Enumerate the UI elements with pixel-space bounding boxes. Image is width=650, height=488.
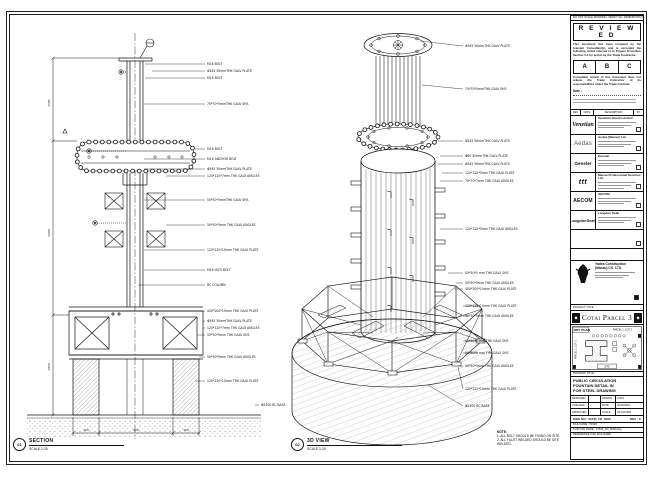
address-lines bbox=[598, 222, 624, 223]
address-lines bbox=[598, 144, 631, 145]
address-lines bbox=[598, 188, 624, 189]
info-row: DESIGNED - DRAWN LOKO bbox=[571, 396, 643, 403]
pipe-bundle bbox=[376, 56, 420, 129]
view-scale: SCALE 1:25 bbox=[29, 447, 124, 451]
checkbox bbox=[636, 241, 641, 246]
base-assembly bbox=[69, 307, 203, 359]
callout-label: 50*50*5 mm THK GALV SHS bbox=[465, 339, 508, 343]
callout-label: 50*50*5mm THK GALV ANGLES bbox=[207, 223, 256, 227]
callout-label: 50*50*5mm THK GALV ANGLES bbox=[465, 281, 514, 285]
consultant-box: Aedas Aedas (Macau) Ltd. bbox=[570, 134, 644, 154]
concrete-drum bbox=[292, 319, 492, 445]
callout-label: 120*120*10mm THK GALV PLATE bbox=[207, 248, 259, 252]
cell-drawn-label: DRAWN bbox=[601, 396, 616, 402]
stamp-mark bbox=[634, 295, 639, 300]
callout-texts: Φ345 50mmTHK GALV PLATE 70*70*5mmTHK GAL… bbox=[465, 44, 518, 408]
consultant-box: LangdonSeah Langdon Seah bbox=[570, 210, 644, 230]
project-title: Cotai Parcel 3 bbox=[582, 313, 632, 322]
yadea-logo bbox=[573, 263, 593, 302]
foundation bbox=[27, 359, 261, 438]
callout-label: Φ345 50mmTHK GALV PLATE bbox=[465, 44, 510, 48]
callout-label: 120*120*7mm THK GALV ANGLES bbox=[207, 174, 260, 178]
address-lines bbox=[598, 217, 636, 218]
stamp-status-options: A B C bbox=[573, 60, 641, 74]
title-block: DO NOT SCALE DRAWING. VERIFY ALL DIMENSI… bbox=[570, 15, 644, 460]
callout-label: M16 HILTI BOLT bbox=[207, 268, 231, 272]
callout-label: 120*120*7mm THK GALV ANGLES bbox=[207, 326, 260, 330]
note-line: 2. ALL FILLET WELDED SHOULD BE SITE WELD… bbox=[497, 438, 569, 446]
consultant-name: Langdon Seah bbox=[598, 212, 641, 215]
consultant-name: Gensler bbox=[598, 155, 641, 158]
consultant-box: Gensler Gensler bbox=[570, 153, 644, 173]
callout-label: 120*120*10mm THK GALV PLATE bbox=[465, 387, 517, 391]
address-lines bbox=[598, 163, 631, 164]
mps-logo: ttt bbox=[571, 173, 596, 191]
cell-checked-value: - bbox=[589, 403, 601, 409]
general-notes: NOTE: 1. ALL BOLT SHOULD BE FIXING ON SI… bbox=[497, 430, 569, 446]
parcel-right-label: PARCEL 1, LOT 2 bbox=[613, 329, 633, 332]
callout-label: 70*70*5mmTHK GALV SHS bbox=[207, 102, 248, 106]
callout-label: Φ345 50mmTHK GALV PLATE bbox=[465, 139, 510, 143]
dim-label: 300 bbox=[83, 428, 89, 432]
stamp-paragraph-2: Consultant review of this document does … bbox=[573, 76, 641, 87]
checkbox bbox=[636, 146, 641, 151]
callout-leaders bbox=[138, 64, 259, 405]
consultant-name: AECOM bbox=[598, 193, 641, 196]
cell-drawn-value: LOKO bbox=[616, 396, 643, 402]
checkbox bbox=[636, 184, 641, 189]
dim-label: 1585 bbox=[47, 99, 51, 107]
callout-texts: M16 BOLT Φ345 50mmTHK GALV PLATE M16 BOL… bbox=[207, 62, 286, 407]
address-lines bbox=[595, 277, 623, 278]
checkbox bbox=[636, 203, 641, 208]
fluted-cylinder bbox=[361, 149, 435, 343]
address-lines bbox=[595, 275, 629, 276]
callout-label: 50*50*5 mm THK GALV SHS bbox=[465, 351, 508, 355]
aedas-logo: Aedas bbox=[571, 135, 596, 153]
drawing-title-line3: FOR STEEL DRAWING bbox=[573, 388, 641, 393]
gensler-logo: Gensler bbox=[571, 154, 596, 172]
iso-view-drawing: Φ345 50mmTHK GALV PLATE 70*70*5mmTHK GAL… bbox=[288, 15, 569, 455]
cylinder-brackets bbox=[351, 181, 445, 312]
callout-label: 120*120*5mm THK GALV ANGLES bbox=[465, 227, 518, 231]
site-label: SITE bbox=[604, 365, 610, 368]
dwg-number: DWG NO : 51545_FD_5000 bbox=[573, 417, 611, 421]
status-option-c: C bbox=[619, 61, 640, 73]
callout-label: M16 BOLT bbox=[207, 147, 222, 151]
cell-checked-label: CHECKED bbox=[571, 403, 589, 409]
callout-label: 120*120*10mm THK GALV PLATE bbox=[465, 304, 517, 308]
callout-label: 120*120*5mm THK GALV PLATE bbox=[465, 171, 515, 175]
address-lines bbox=[595, 272, 635, 273]
empty-consultant-box bbox=[570, 229, 644, 249]
callout-label: M16 BOLT bbox=[207, 62, 222, 66]
parcel-left-label: PARCEL 1, LOT 1 bbox=[574, 340, 577, 360]
address-lines bbox=[598, 220, 631, 221]
cell-designed-value: - bbox=[589, 396, 601, 402]
drawing-title: PUBLIC CIRCULATION FOUNTAIN DETAIL IN FO… bbox=[570, 376, 644, 396]
title-block-filler bbox=[570, 437, 644, 460]
address-lines bbox=[598, 182, 636, 183]
cell-date-label: DATE bbox=[601, 403, 616, 409]
address-lines bbox=[598, 125, 631, 126]
callout-label: 50*50*5mm THK GALV ANGLES bbox=[465, 364, 514, 368]
address-lines bbox=[598, 141, 636, 142]
key-plan-label: KEY PLAN bbox=[574, 328, 591, 332]
grid-bubble bbox=[140, 39, 154, 58]
callout-label: Φ80 50mmTHK GALV PLATE bbox=[465, 154, 508, 158]
view-title: SECTION bbox=[29, 438, 124, 444]
callout-label: 400*200*10mm THK GALV PLATE bbox=[207, 309, 259, 313]
address-lines bbox=[598, 185, 631, 186]
scalloped-bowl bbox=[77, 142, 194, 171]
review-stamp: R E V I E W E D This document has been r… bbox=[570, 20, 644, 110]
key-plan: KEY PLAN PARCEL 1, LOT 2 PARCEL 1, LOT 1 bbox=[570, 324, 644, 372]
dim-label: 300 bbox=[183, 428, 189, 432]
consultant-name: Aedas (Macau) Ltd. bbox=[598, 136, 641, 139]
drawing-sheet: 1585 3200 1650 300 600 300 bbox=[0, 0, 650, 488]
callout-label: 400*200*10mm THK GALV PLATE bbox=[465, 287, 517, 291]
callout-label: Φ2300 RC BASE bbox=[465, 404, 490, 408]
detail-tag-circle: 01 bbox=[13, 438, 26, 451]
address-lines bbox=[598, 127, 624, 128]
callout-label: Φ345 50mmTHK GALV PLATE bbox=[207, 167, 252, 171]
address-lines bbox=[598, 201, 631, 202]
ornament-right: ◆ bbox=[634, 313, 642, 323]
address-lines bbox=[598, 146, 624, 147]
ornament-left: ◆ bbox=[572, 313, 580, 323]
dim-label: 1650 bbox=[47, 363, 51, 371]
consultant-name: Macau Professional Services Ltd. bbox=[598, 174, 641, 181]
aecom-logo: AECOM bbox=[571, 192, 596, 210]
checkbox bbox=[636, 222, 641, 227]
scalloped-collar bbox=[358, 124, 438, 150]
consultant-box: Venetian Venetian Orient Limited bbox=[570, 115, 644, 135]
consultant-box: AECOM AECOM bbox=[570, 191, 644, 211]
callout-label: Φ345 50mmTHK GALV PLATE bbox=[207, 319, 252, 323]
detail-tag-circle: 02 bbox=[291, 438, 304, 451]
dim-label: 3200 bbox=[47, 229, 51, 237]
checkbox bbox=[636, 127, 641, 132]
status-option-b: B bbox=[596, 61, 618, 73]
drawing-info-table: DESIGNED - DRAWN LOKO CHECKED - DATE 04/… bbox=[570, 395, 644, 416]
callout-label: 50*50*5mm THK GALV SHS bbox=[207, 333, 249, 337]
top-plate-disc bbox=[364, 34, 432, 57]
consultant-name: Venetian Orient Limited bbox=[598, 117, 641, 120]
view-title: 3D VIEW bbox=[307, 438, 402, 444]
callout-label: Φ2300 RC BASE bbox=[261, 403, 286, 407]
callout-label: 50*50*5 mm THK GALV SHS bbox=[465, 271, 508, 275]
callout-label: Φ345 50mmTHK GALV PLATE bbox=[207, 69, 252, 73]
consultant-box: ttt Macau Professional Services Ltd. bbox=[570, 172, 644, 192]
revision-value: REV : C bbox=[630, 417, 641, 421]
reviewed-stamp-title: R E V I E W E D bbox=[573, 23, 641, 41]
contractor-name-2: (Macau) CO. LTD. bbox=[595, 267, 641, 271]
view-scale: SCALE 1:25 bbox=[307, 447, 402, 451]
stamp-paragraph-1: This document has been reviewed by the r… bbox=[573, 43, 641, 58]
info-row: CHECKED - DATE 04/12/2015 bbox=[571, 403, 643, 410]
address-lines bbox=[598, 165, 624, 166]
contractor-box: Yadea Construction (Macau) CO. LTD. bbox=[570, 260, 644, 305]
address-lines bbox=[598, 203, 624, 204]
callout-label: RC COLUMN bbox=[207, 283, 226, 287]
dim-label: 600 bbox=[133, 428, 139, 432]
callout-label: 50*50*5mmTHK GALV SHS bbox=[207, 198, 248, 202]
section-view-label: 01 SECTION SCALE 1:25 bbox=[13, 438, 124, 451]
checkbox bbox=[636, 165, 641, 170]
status-option-a: A bbox=[574, 61, 596, 73]
section-view-drawing: 1585 3200 1650 300 600 300 bbox=[9, 15, 287, 455]
callout-label: 50*50*5mm THK GALV ANGLES bbox=[207, 355, 256, 359]
address-lines bbox=[598, 198, 636, 199]
address-lines bbox=[598, 122, 636, 123]
project-title-row: ◆ Cotai Parcel 3 ◆ bbox=[570, 310, 644, 325]
blank-writing-line bbox=[573, 102, 636, 103]
empty-consultant-box bbox=[570, 248, 644, 261]
callout-label: 70*70*5mmTHK GALV SHS bbox=[465, 87, 506, 91]
callout-label: M16 ANCHOR BOLT bbox=[207, 157, 237, 161]
iso-view-label: 02 3D VIEW SCALE 1:25 bbox=[291, 438, 402, 451]
callout-label: 120*120*10mm THK GALV PLATE bbox=[207, 379, 259, 383]
callout-label: 70*70*7mm THK GALV ANGLES bbox=[465, 179, 514, 183]
title-underline bbox=[307, 445, 402, 446]
steel-column bbox=[119, 58, 152, 307]
address-lines bbox=[598, 160, 636, 161]
callout-label: M16 BOLT bbox=[207, 76, 222, 80]
callout-label: Φ345 50mmTHK GALV PLATE bbox=[465, 162, 510, 166]
venetian-logo: Venetian bbox=[571, 116, 596, 134]
stamp-date-line: Date : bbox=[573, 89, 641, 96]
cell-designed-label: DESIGNED bbox=[571, 396, 589, 402]
blank-writing-line bbox=[573, 99, 636, 100]
langdonseah-logo: LangdonSeah bbox=[571, 211, 596, 229]
callout-label: 50*50*5mm THK GALV ANGLES bbox=[465, 314, 514, 318]
title-underline bbox=[29, 445, 124, 446]
cell-date-value: 04/12/2015 bbox=[616, 403, 643, 409]
